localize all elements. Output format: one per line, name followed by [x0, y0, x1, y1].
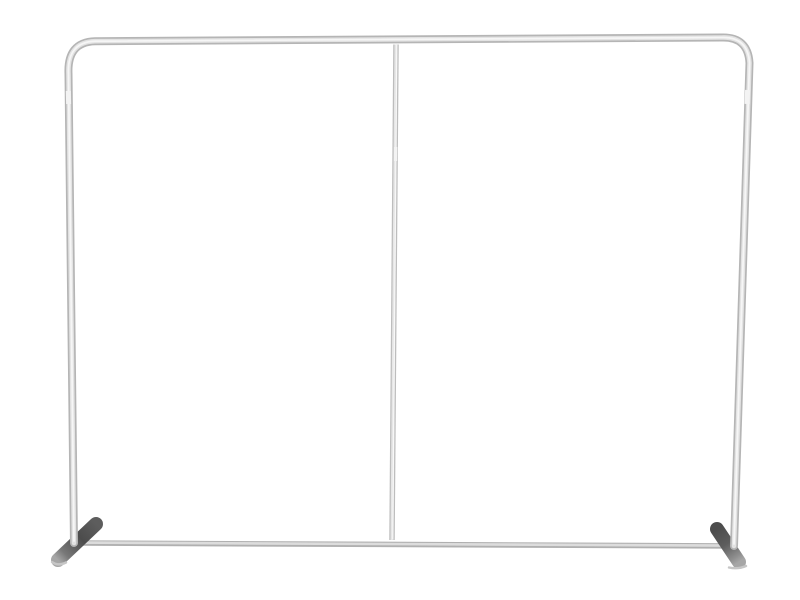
product-photo [0, 0, 800, 600]
center-pole [392, 45, 397, 541]
backdrop-frame-illustration [0, 0, 800, 600]
bottom-bar [74, 543, 734, 546]
page: { "image": { "alt": "Silver aluminum tub… [0, 0, 800, 600]
frame-tube [68, 37, 749, 546]
right-tube-joint [747, 90, 748, 104]
tube-joints [68, 90, 747, 161]
